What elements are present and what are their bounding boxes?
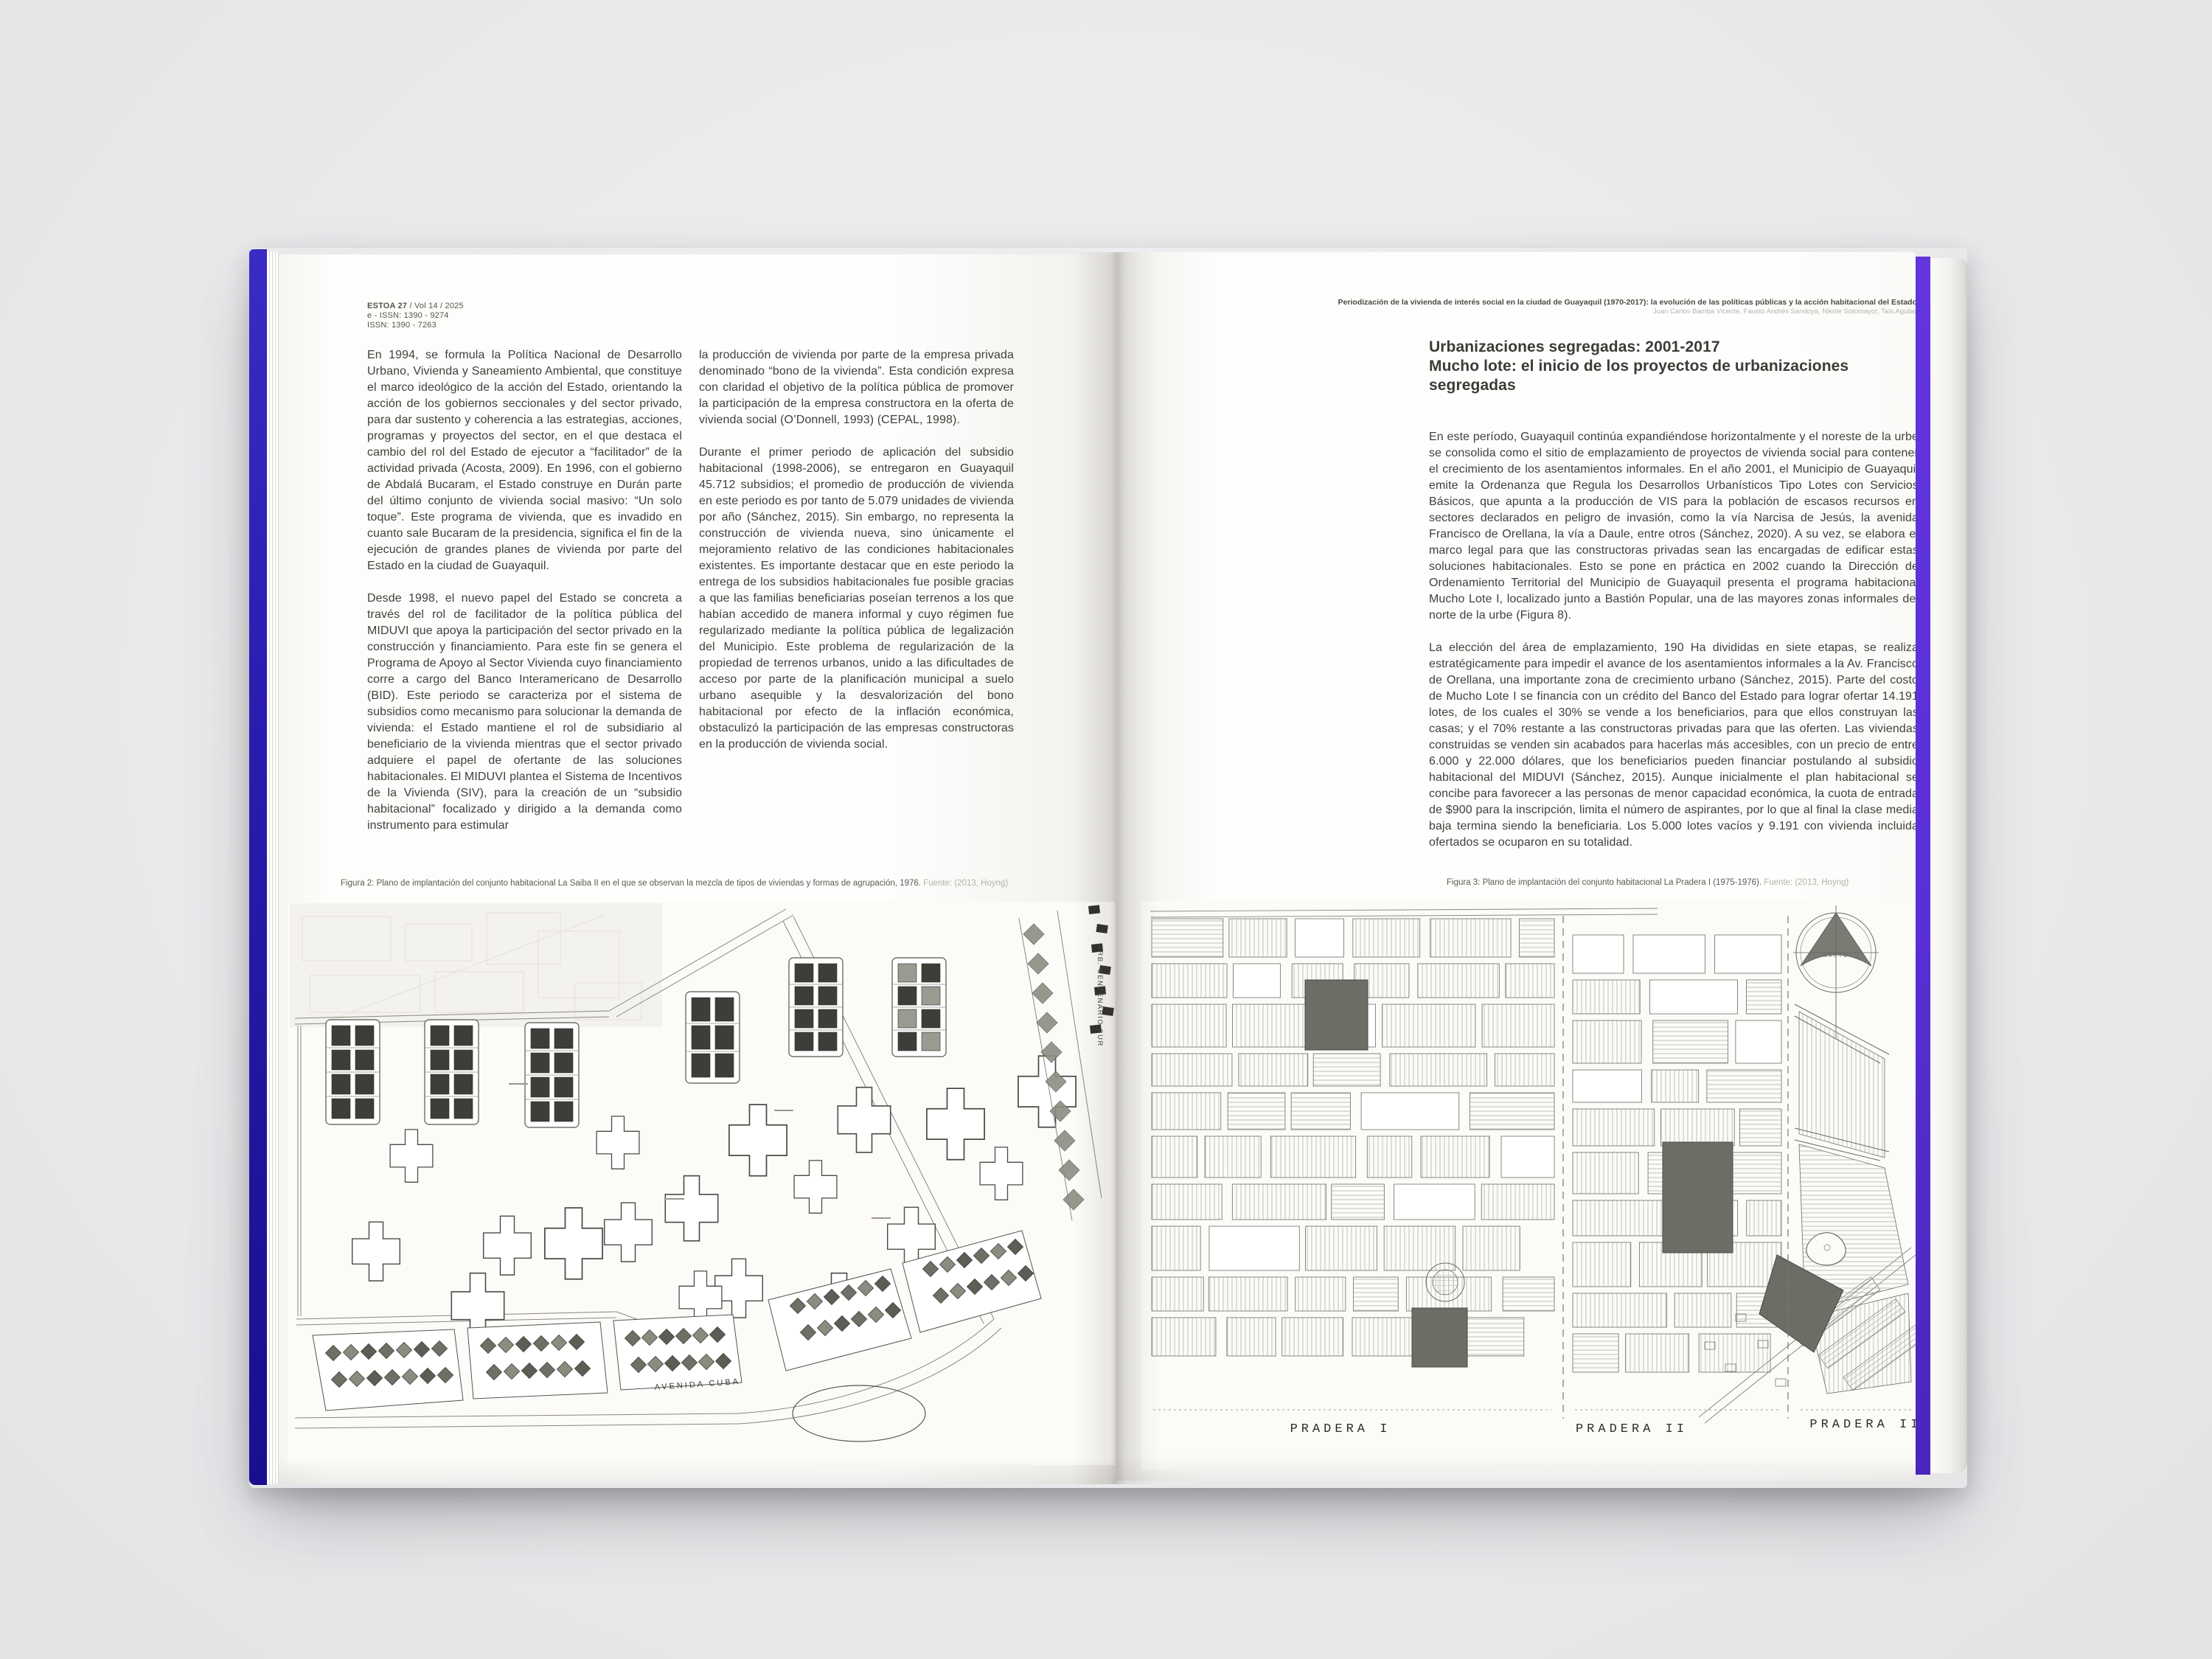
- paragraph: En este período, Guayaquil continúa expa…: [1429, 429, 1919, 624]
- page-edge-stack-right: [1930, 258, 1967, 1473]
- figure-2-site-plan-la-saiba: AVENIDA CUBA URB. CENTENARIO SUR: [288, 902, 1115, 1465]
- figure-3-caption-text: Figura 3: Plano de implantación del conj…: [1447, 878, 1761, 887]
- paragraph: En 1994, se formula la Política Nacional…: [367, 347, 682, 574]
- section-title: Urbanizaciones segregadas: 2001-2017 Muc…: [1429, 338, 1908, 395]
- pradera-3-label: PRADERA III: [1809, 1418, 1919, 1432]
- compass-norte-label: NORTE: [1823, 953, 1848, 959]
- figure-3-site-plan-la-pradera: NORTE PRADERA I PRADERA II PRADERA III: [1141, 901, 1919, 1470]
- figure-2-caption-source: Fuente: (2013, Hoyng): [921, 879, 1008, 888]
- running-header-authors: Juan Carlos Bamba Vicente, Fausto Andrés…: [1116, 307, 1917, 316]
- open-journal-spread: ESTOA 27 / Vol 14 / 2025 e - ISSN: 1390 …: [249, 248, 1967, 1488]
- journal-cover-spine-right: [1916, 257, 1930, 1475]
- journal-header: ESTOA 27 / Vol 14 / 2025 e - ISSN: 1390 …: [367, 302, 464, 330]
- figure-3-caption-source: Fuente: (2013, Hoyng): [1761, 878, 1848, 887]
- section-title-line2: Mucho lote: el inicio de los proyectos d…: [1429, 357, 1908, 395]
- figure-2-caption-text: Figura 2: Plano de implantación del conj…: [341, 879, 921, 888]
- left-page-column-1: En 1994, se formula la Política Nacional…: [367, 347, 682, 850]
- right-page-body: En este período, Guayaquil continúa expa…: [1429, 429, 1919, 867]
- running-header-title: Periodización de la vivienda de interés …: [1116, 298, 1917, 307]
- left-page: ESTOA 27 / Vol 14 / 2025 e - ISSN: 1390 …: [279, 254, 1116, 1484]
- paragraph: Desde 1998, el nuevo papel del Estado se…: [367, 591, 682, 834]
- page-edge-stack-left: [267, 251, 279, 1484]
- paragraph: la producción de vivienda por parte de l…: [699, 347, 1014, 428]
- paragraph: Durante el primer periodo de aplicación …: [699, 445, 1014, 753]
- running-header: Periodización de la vivienda de interés …: [1116, 298, 1917, 316]
- section-title-line1: Urbanizaciones segregadas: 2001-2017: [1429, 338, 1908, 357]
- journal-cover-spine-left: [249, 249, 267, 1485]
- pradera-2-label: PRADERA II: [1576, 1422, 1688, 1436]
- paragraph: La elección del área de emplazamiento, 1…: [1429, 640, 1919, 851]
- right-page: Periodización de la vivienda de interés …: [1116, 252, 1916, 1481]
- figure-3-caption: Figura 3: Plano de implantación del conj…: [1447, 877, 1904, 888]
- journal-eissn: e - ISSN: 1390 - 9274: [367, 311, 464, 321]
- left-page-column-2: la producción de vivienda por parte de l…: [699, 347, 1014, 769]
- journal-volume: / Vol 14 / 2025: [407, 302, 464, 310]
- journal-name: ESTOA 27: [367, 302, 407, 310]
- urb-centenario-sur-label: URB. CENTENARIO SUR: [1096, 945, 1104, 1047]
- pradera-1-label: PRADERA I: [1290, 1422, 1391, 1436]
- journal-issn: ISSN: 1390 - 7263: [367, 321, 464, 330]
- figure-2-caption: Figura 2: Plano de implantación del conj…: [341, 878, 1107, 888]
